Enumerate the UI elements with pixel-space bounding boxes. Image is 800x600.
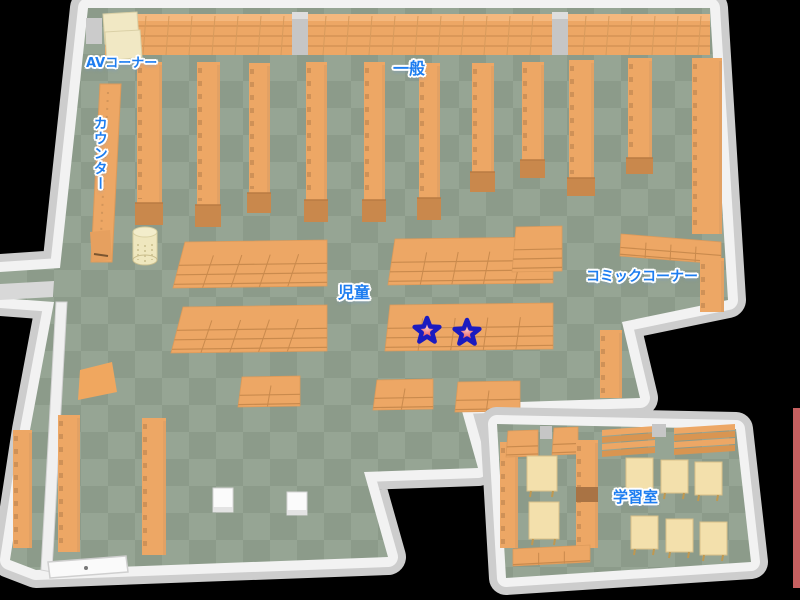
pillar-top <box>292 12 308 19</box>
pillar <box>652 424 666 437</box>
floor-map <box>0 0 800 600</box>
label-general: 一般 <box>393 61 425 78</box>
label-children: 児童 <box>338 285 370 302</box>
top-wall-shelves <box>105 14 710 55</box>
pillar <box>86 18 102 44</box>
av-corner-desks <box>103 12 142 61</box>
kiosk-box <box>213 488 233 512</box>
map-edge-marker <box>793 408 800 588</box>
pillar-top <box>552 12 568 19</box>
rotating-rack <box>133 227 157 265</box>
label-study-room: 学習室 <box>613 490 658 506</box>
library-map-canvas[interactable]: AVコーナー 一般 カウンター 児童 コミックコーナー 学習室 <box>0 0 800 600</box>
label-av-corner: AVコーナー <box>86 57 157 71</box>
label-counter: カウンター <box>92 116 107 191</box>
pillar <box>540 426 552 439</box>
label-comic-corner: コミックコーナー <box>586 270 698 285</box>
kiosk-box <box>287 492 307 515</box>
counter-cabinet <box>90 230 112 262</box>
alcove-wall-face <box>0 281 54 300</box>
